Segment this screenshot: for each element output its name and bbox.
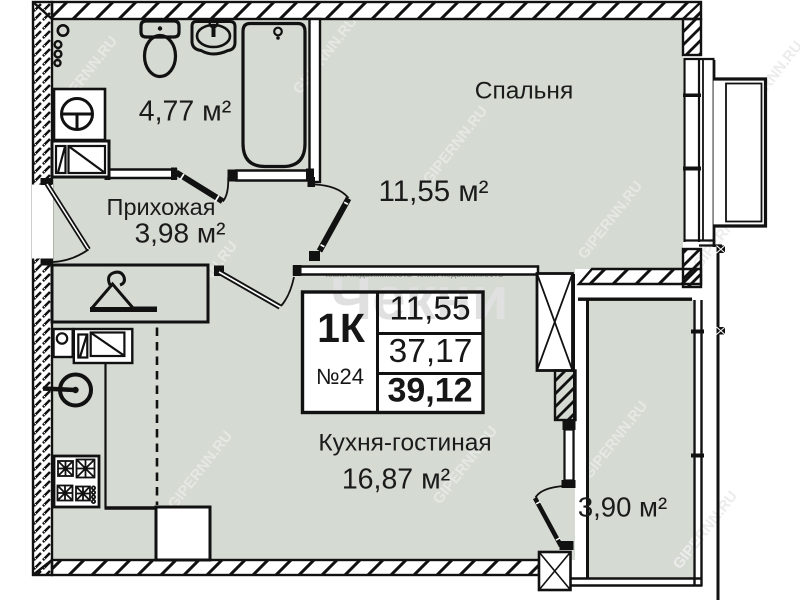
svg-text:Спальня: Спальня	[475, 78, 573, 105]
svg-text:11,55: 11,55	[389, 291, 470, 328]
svg-text:№24: №24	[316, 364, 364, 389]
svg-text:3,98 м²: 3,98 м²	[135, 218, 226, 249]
svg-text:Кухня-гостиная: Кухня-гостиная	[318, 430, 491, 457]
svg-text:3,90 м²: 3,90 м²	[578, 492, 667, 523]
svg-text:39,12: 39,12	[387, 372, 472, 410]
svg-text:37,17: 37,17	[389, 333, 473, 370]
svg-text:1К: 1К	[317, 305, 366, 351]
svg-text:4,77 м²: 4,77 м²	[139, 96, 231, 128]
svg-text:16,87 м²: 16,87 м²	[342, 464, 450, 496]
svg-text:11,55 м²: 11,55 м²	[379, 175, 489, 208]
svg-text:Прихожая: Прихожая	[107, 194, 216, 220]
